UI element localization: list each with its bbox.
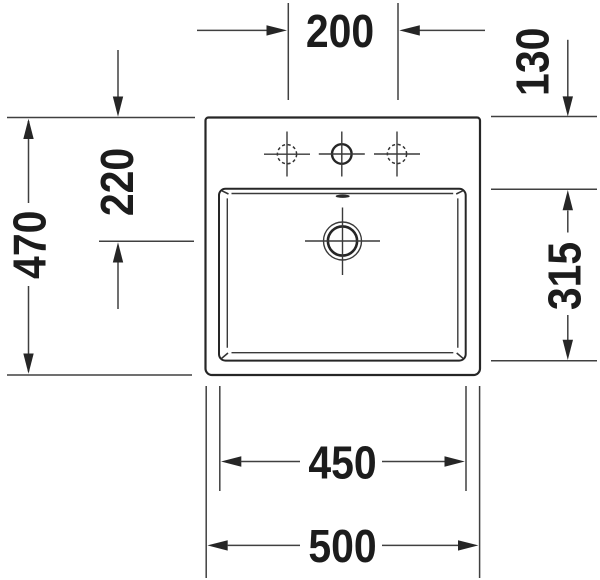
svg-text:130: 130 bbox=[508, 28, 559, 96]
svg-text:500: 500 bbox=[308, 522, 376, 573]
svg-text:470: 470 bbox=[5, 211, 56, 279]
svg-text:450: 450 bbox=[308, 438, 376, 489]
svg-text:200: 200 bbox=[306, 7, 374, 58]
svg-text:315: 315 bbox=[540, 242, 591, 310]
svg-text:220: 220 bbox=[93, 148, 144, 216]
